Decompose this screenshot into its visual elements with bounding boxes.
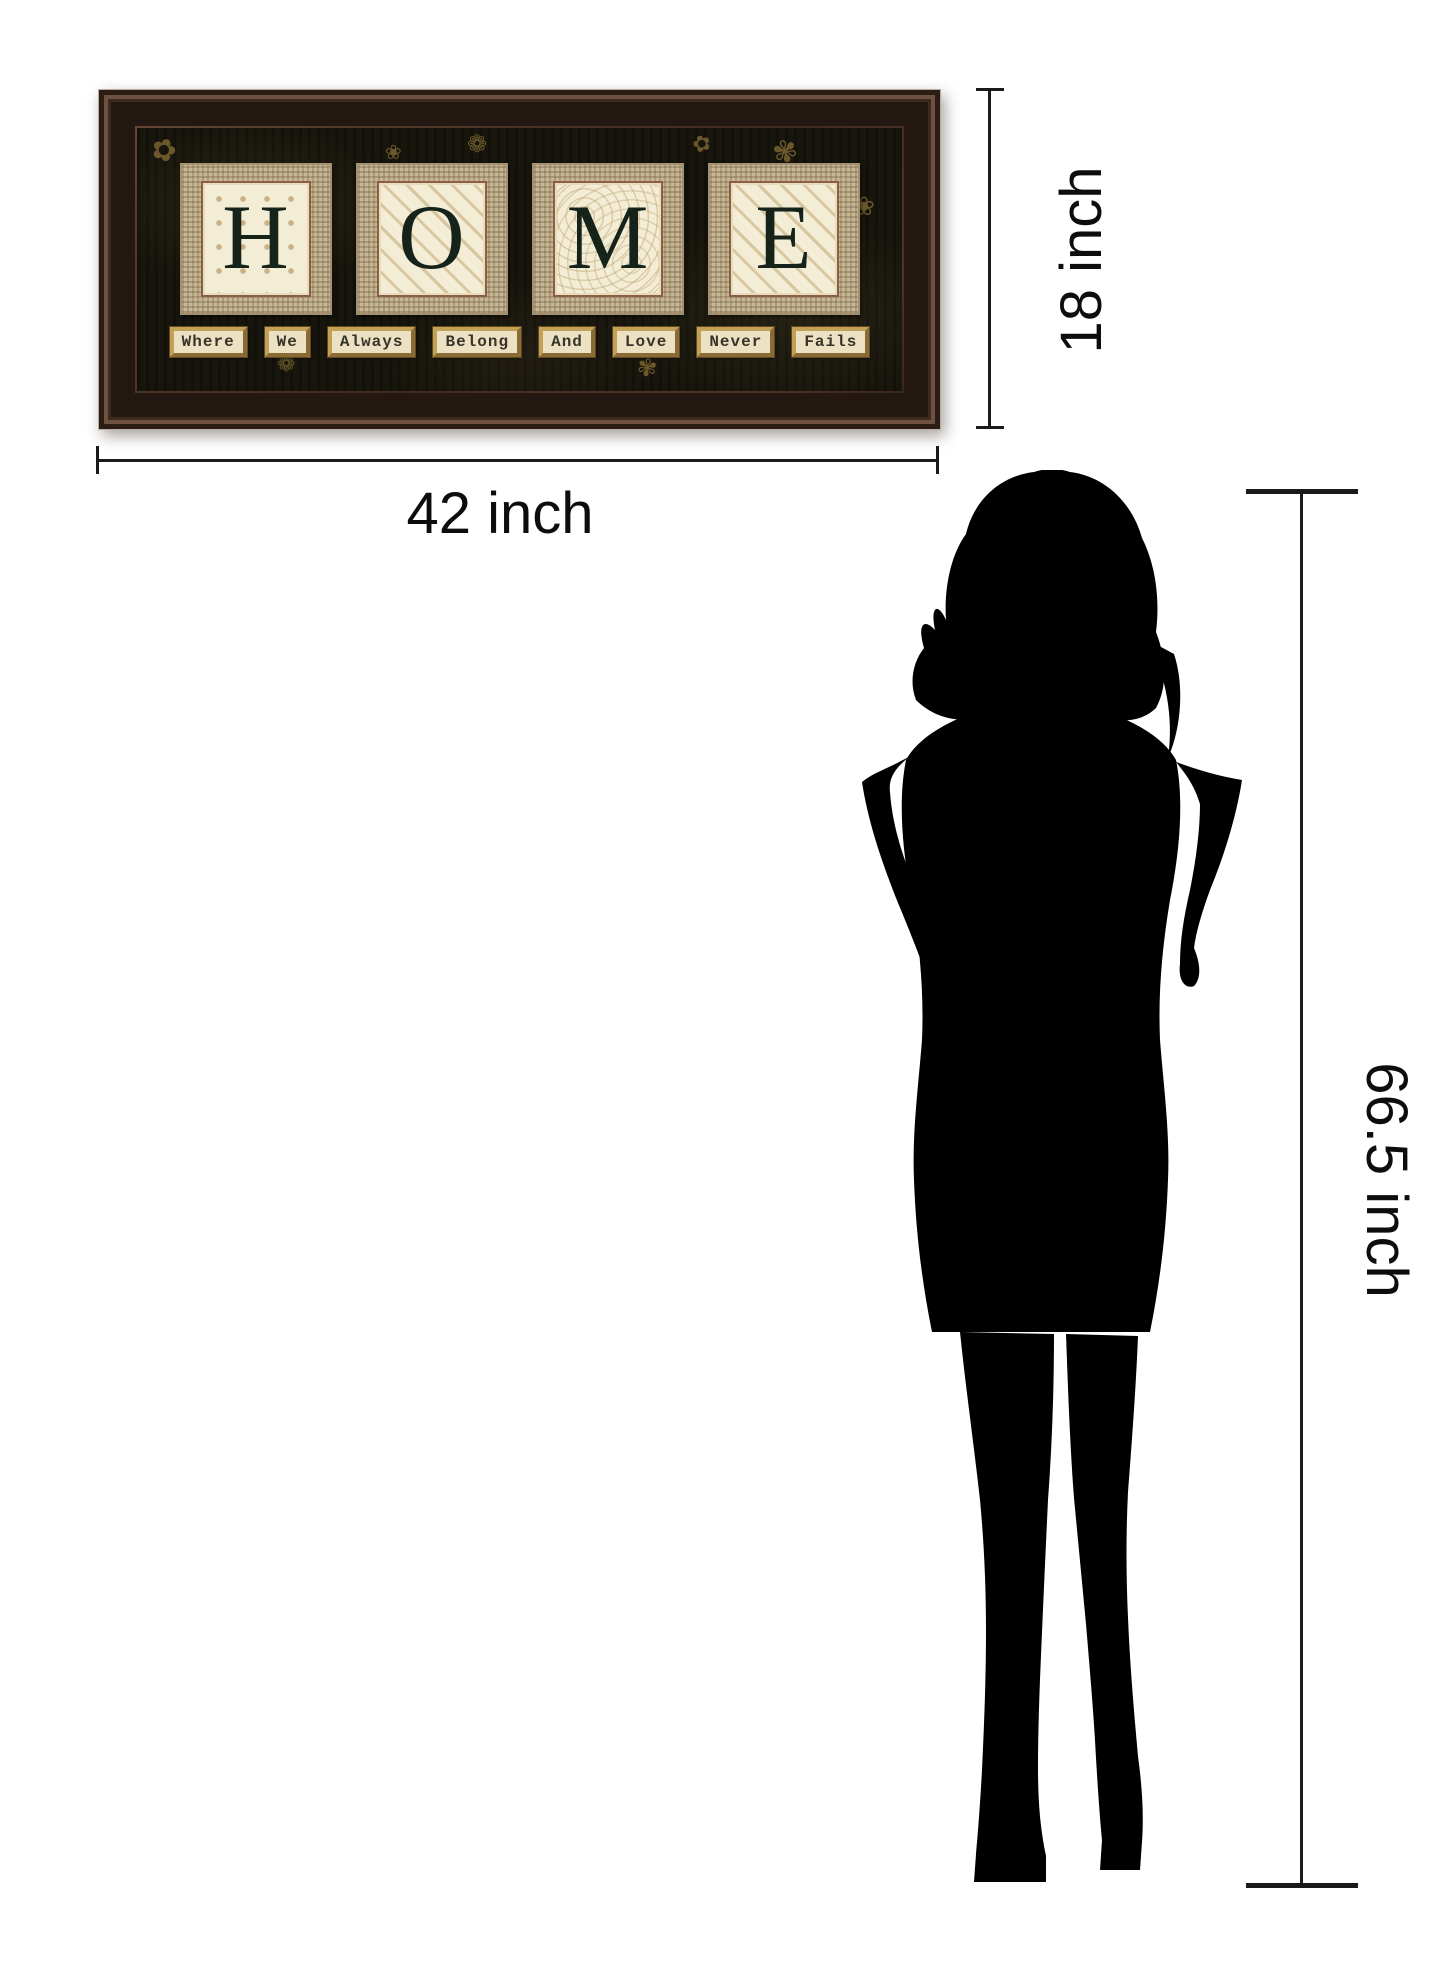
floral-doodle-icon: ❁ [277, 354, 295, 376]
height-dimension-tick-top [976, 88, 1004, 91]
caption-tile-label: And [551, 333, 583, 351]
person-silhouette [850, 470, 1270, 1890]
caption-tile: We [265, 327, 310, 357]
caption-tile: Where [170, 327, 247, 357]
width-dimension-line [98, 459, 939, 462]
height-dimension-line [988, 89, 991, 429]
caption-tile: Belong [433, 327, 521, 357]
caption-tile-label: Belong [445, 333, 509, 351]
caption-tile-label: Love [625, 333, 667, 351]
product-dimension-diagram: ✿❀❁✾❀✿❁✾❀✿ HOME WhereWeAlwaysBelongAndLo… [0, 0, 1445, 1973]
caption-tile: Fails [792, 327, 869, 357]
caption-tile-label: Where [182, 333, 235, 351]
letter-glyph: M [567, 191, 649, 283]
letter-card: E [729, 181, 839, 297]
floral-doodle-icon: ❀ [385, 142, 402, 162]
caption-tiles-row: WhereWeAlwaysBelongAndLoveNeverFails [170, 327, 870, 357]
floral-doodle-icon: ✾ [635, 354, 659, 381]
floral-doodle-icon: ✿ [147, 133, 181, 170]
letter-card: M [553, 181, 663, 297]
artwork-canvas: ✿❀❁✾❀✿❁✾❀✿ HOME WhereWeAlwaysBelongAndLo… [137, 128, 902, 391]
floral-doodle-icon: ✿ [690, 132, 715, 159]
caption-tile: And [539, 327, 595, 357]
person-height-label: 66.5 inch [1354, 970, 1418, 1390]
caption-tile-label: Never [709, 333, 762, 351]
letter-glyph: E [755, 191, 811, 283]
letter-blocks-row: HOME [180, 163, 860, 315]
letter-block-m: M [532, 163, 684, 315]
caption-tile: Always [328, 327, 416, 357]
caption-tile-label: Always [340, 333, 404, 351]
framed-artwork: ✿❀❁✾❀✿❁✾❀✿ HOME WhereWeAlwaysBelongAndLo… [98, 89, 941, 430]
caption-tile-label: Fails [804, 333, 857, 351]
letter-card: H [201, 181, 311, 297]
caption-tile-label: We [277, 333, 298, 351]
floral-doodle-icon: ❁ [467, 132, 487, 156]
letter-glyph: H [222, 191, 288, 283]
letter-block-e: E [708, 163, 860, 315]
width-dimension-tick-left [96, 446, 99, 474]
height-dimension-tick-bottom [976, 426, 1004, 429]
height-dimension-label: 18 inch [1050, 100, 1114, 420]
width-dimension-label: 42 inch [290, 482, 710, 546]
letter-card: O [377, 181, 487, 297]
person-height-dimension-line [1300, 491, 1303, 1887]
caption-tile: Never [697, 327, 774, 357]
letter-glyph: O [398, 191, 464, 283]
caption-tile: Love [613, 327, 679, 357]
letter-block-o: O [356, 163, 508, 315]
letter-block-h: H [180, 163, 332, 315]
